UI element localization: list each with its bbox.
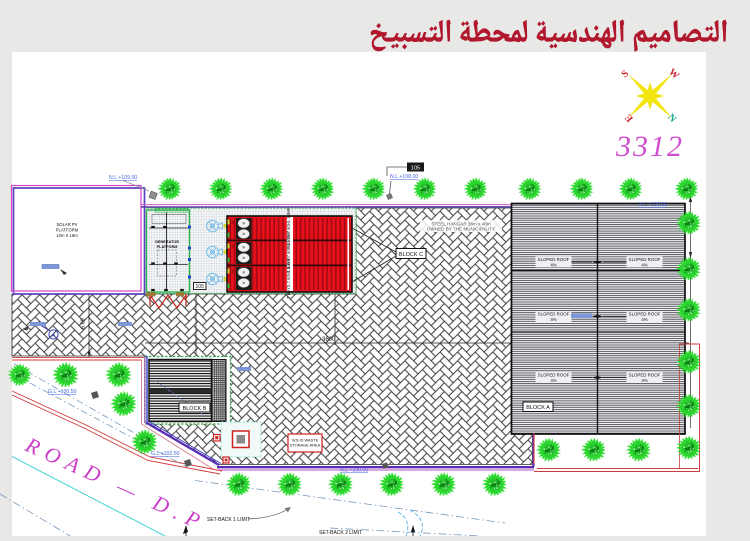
svg-text:N.L +108.00: N.L +108.00 <box>390 174 418 180</box>
svg-text:SET-BACK 1 LIMIT: SET-BACK 1 LIMIT <box>207 517 250 523</box>
svg-text:3312: 3312 <box>615 130 684 163</box>
svg-text:4%: 4% <box>550 317 556 322</box>
svg-text:BLOCK A: BLOCK A <box>526 405 550 411</box>
svg-text:SOLAR PV: SOLAR PV <box>57 222 78 227</box>
svg-text:PLATFORM: PLATFORM <box>157 245 178 249</box>
svg-text:4%: 4% <box>550 378 556 383</box>
svg-text:N.L +100.00: N.L +100.00 <box>340 468 368 474</box>
svg-text:4%: 4% <box>641 262 647 267</box>
svg-text:105: 105 <box>411 166 420 172</box>
svg-text:SET-BACK 2 LIMIT: SET-BACK 2 LIMIT <box>319 530 362 536</box>
svg-text:3600: 3600 <box>322 337 336 343</box>
svg-text:OWNED BY THE MUNICIPALITY: OWNED BY THE MUNICIPALITY <box>427 227 495 232</box>
svg-text:A: A <box>52 333 56 339</box>
svg-text:4%: 4% <box>641 378 647 383</box>
svg-text:4%: 4% <box>641 317 647 322</box>
svg-text:N.L +109.00: N.L +109.00 <box>639 202 667 208</box>
svg-text:BLOCK B: BLOCK B <box>183 406 207 412</box>
svg-text:G.L +102.50: G.L +102.50 <box>151 451 180 457</box>
svg-text:PLATFORM: PLATFORM <box>56 228 79 233</box>
svg-text:GENERATOR: GENERATOR <box>155 240 179 244</box>
svg-text:4%: 4% <box>550 262 556 267</box>
svg-text:STORAGE AREA: STORAGE AREA <box>290 443 321 448</box>
svg-text:6.00: 6.00 <box>81 318 87 329</box>
svg-text:G.L +100.50: G.L +100.50 <box>48 389 77 395</box>
svg-text:105: 105 <box>196 284 205 290</box>
svg-text:7 BAYS 7 60HL 1 8HP: 7 BAYS 7 60HL 1 8HP <box>286 257 291 299</box>
svg-text:BLOCK C: BLOCK C <box>399 252 423 258</box>
svg-text:10m X 16m: 10m X 16m <box>56 233 78 238</box>
